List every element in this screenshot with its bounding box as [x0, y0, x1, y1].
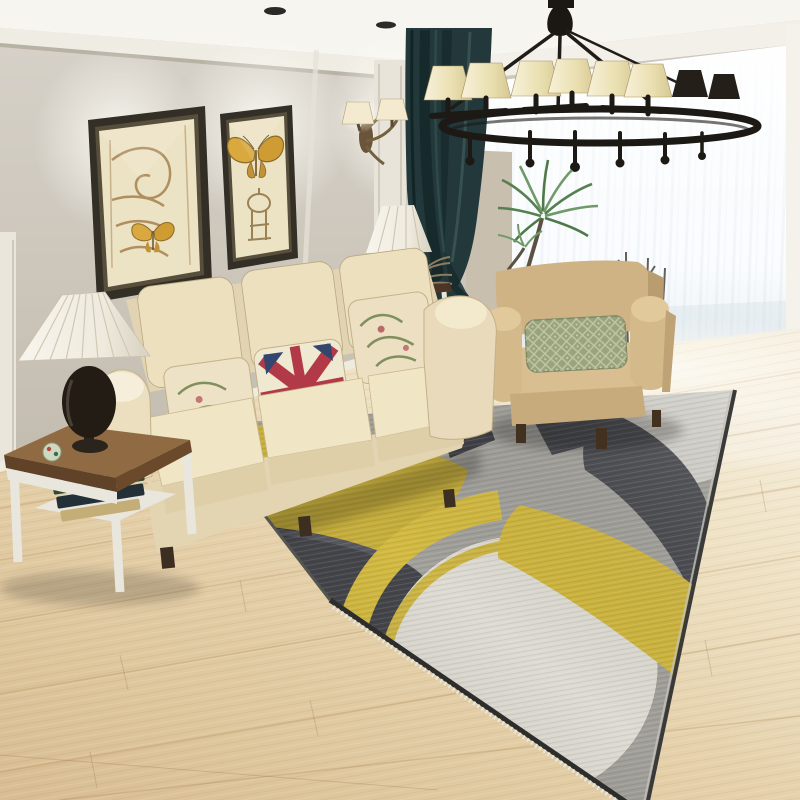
green-diamond-pillow — [525, 315, 628, 372]
side-table-shadow — [0, 571, 200, 605]
sofa-arm-roll — [435, 297, 487, 329]
ceiling-spotlight-icon — [264, 7, 286, 15]
decor-ball — [43, 443, 61, 461]
window-frame-right — [786, 24, 800, 346]
lamp-foot — [72, 439, 108, 453]
ceiling-spotlight-icon — [376, 22, 396, 29]
framed-print-butterfly-tower — [220, 105, 298, 270]
framed-print-architectural-butterfly — [88, 106, 212, 302]
decor-ball-dot — [47, 447, 51, 451]
sconce-shade — [376, 99, 408, 120]
living-room-photo — [0, 0, 800, 800]
lamp-base — [62, 366, 116, 438]
armchair-arm-roll — [631, 296, 669, 322]
chandelier-mount — [548, 0, 574, 8]
scene-canvas — [0, 0, 800, 800]
decor-ball-dot — [54, 452, 58, 456]
sconce-shade — [342, 102, 374, 124]
